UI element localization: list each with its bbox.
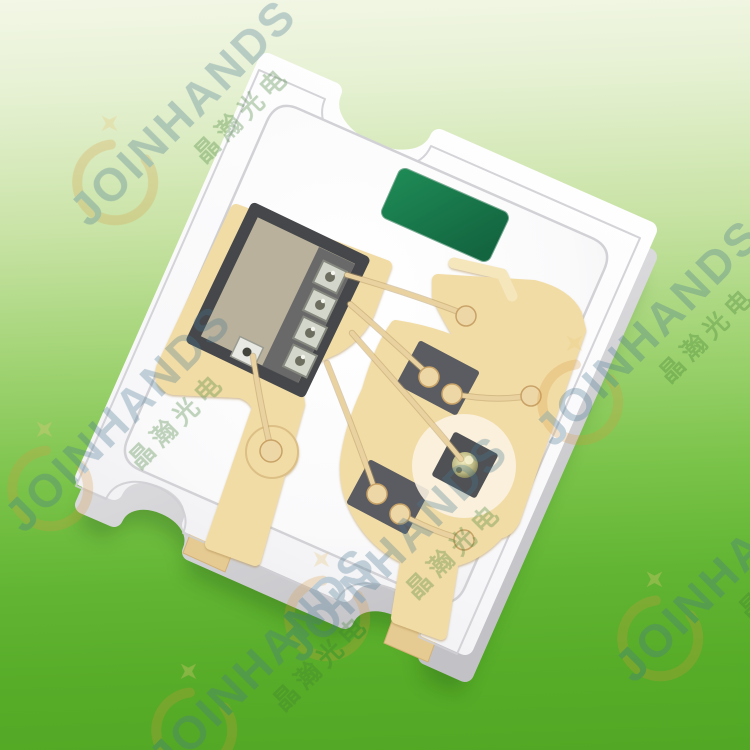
wire-ball xyxy=(442,384,462,404)
brand-watermark: JOINHANDS 晶瀚光电 xyxy=(584,424,750,715)
sparkle-icon xyxy=(29,414,60,445)
led-package-illustration: JOINHANDS 晶瀚光电 JOINHANDS 晶瀚光电 JOINHANDS … xyxy=(0,0,750,750)
wire-ball xyxy=(456,306,476,326)
sparkle-icon xyxy=(639,564,670,595)
product-render: JOINHANDS 晶瀚光电 JOINHANDS 晶瀚光电 JOINHANDS … xyxy=(0,0,750,750)
wire-ball xyxy=(260,440,282,462)
sparkle-icon xyxy=(94,108,125,139)
sparkle-icon xyxy=(173,656,204,687)
brand-watermark-text: JOINHANDS xyxy=(604,444,750,691)
wire-ball xyxy=(419,367,439,387)
wire-ball xyxy=(367,484,387,504)
